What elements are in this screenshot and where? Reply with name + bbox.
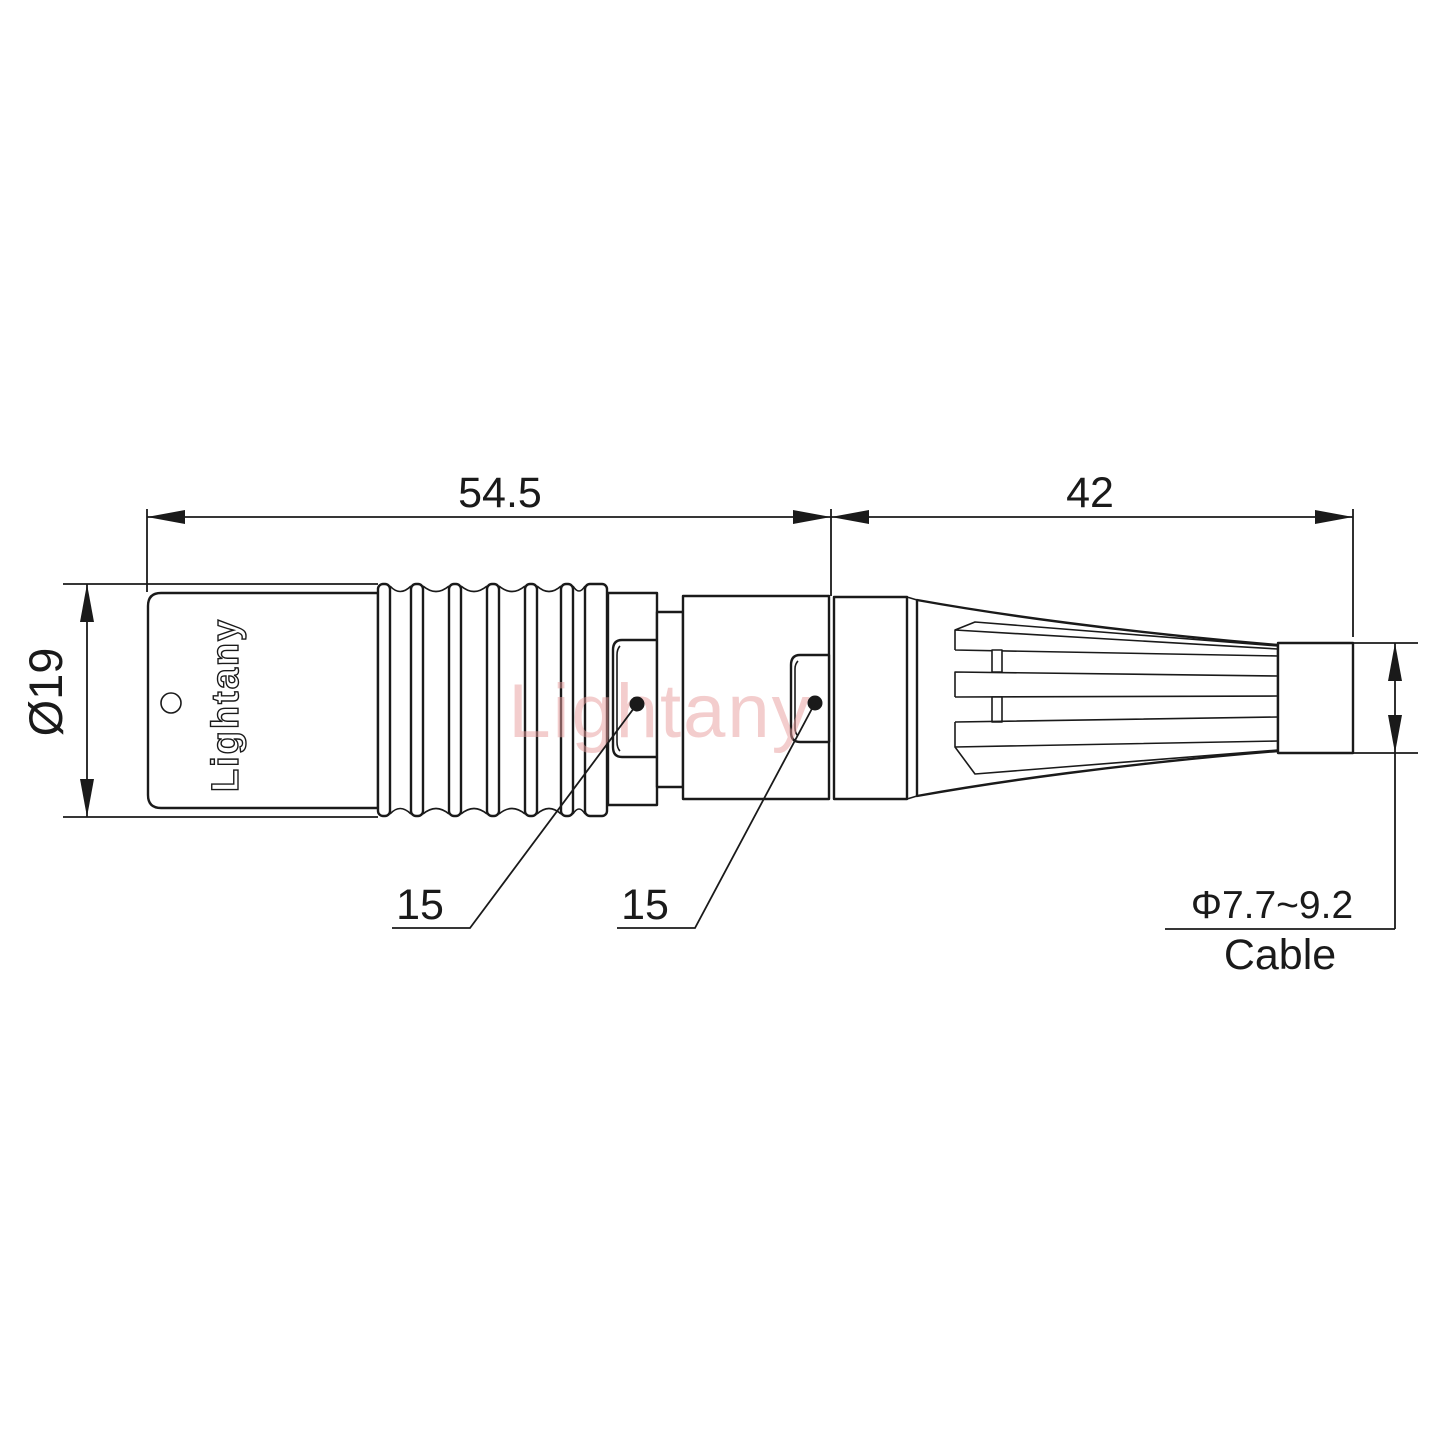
dimension-boot-length: 42 bbox=[831, 469, 1353, 637]
body-brand-engraving: Lightany bbox=[205, 618, 247, 792]
arrow-up bbox=[1388, 643, 1402, 681]
front-length-value: 54.5 bbox=[458, 469, 542, 517]
boot-shoulder bbox=[907, 597, 917, 799]
dimension-front-length: 54.5 bbox=[147, 469, 831, 596]
arrow-down bbox=[1388, 715, 1402, 753]
strain-relief-boot bbox=[834, 597, 1278, 799]
arrow-up bbox=[80, 584, 94, 622]
bellows-ridge bbox=[378, 584, 390, 816]
boot-base bbox=[834, 597, 907, 799]
cable-sleeve bbox=[1278, 643, 1353, 753]
collar-flats-value: 15 bbox=[396, 881, 444, 929]
arrow-left bbox=[147, 510, 185, 524]
technical-drawing-page: Lightany Lightany 54.5 42 Ø19 15 1 bbox=[0, 0, 1440, 1440]
body-engraving-circle bbox=[161, 693, 181, 713]
arrow-right bbox=[793, 510, 831, 524]
boot-strut bbox=[992, 650, 1002, 672]
connector-body bbox=[148, 593, 378, 808]
body-diameter-value: Ø19 bbox=[19, 648, 72, 737]
boot-strut bbox=[992, 697, 1002, 722]
arrow-right bbox=[1315, 510, 1353, 524]
arrow-down bbox=[80, 779, 94, 817]
cable-caption: Cable bbox=[1224, 931, 1336, 979]
bellows-ridge bbox=[487, 584, 499, 816]
arrow-left bbox=[831, 510, 869, 524]
bellows-ridge bbox=[411, 584, 423, 816]
bellows-ridge bbox=[449, 584, 461, 816]
boot-cone bbox=[917, 600, 1278, 796]
coupling-flats-value: 15 bbox=[621, 881, 669, 929]
cable-diameter-value: Φ7.7~9.2 bbox=[1191, 884, 1353, 927]
connector-technical-drawing: Lightany Lightany 54.5 42 Ø19 15 1 bbox=[0, 0, 1440, 1440]
boot-length-value: 42 bbox=[1066, 469, 1114, 517]
watermark-text: Lightany bbox=[508, 669, 811, 754]
